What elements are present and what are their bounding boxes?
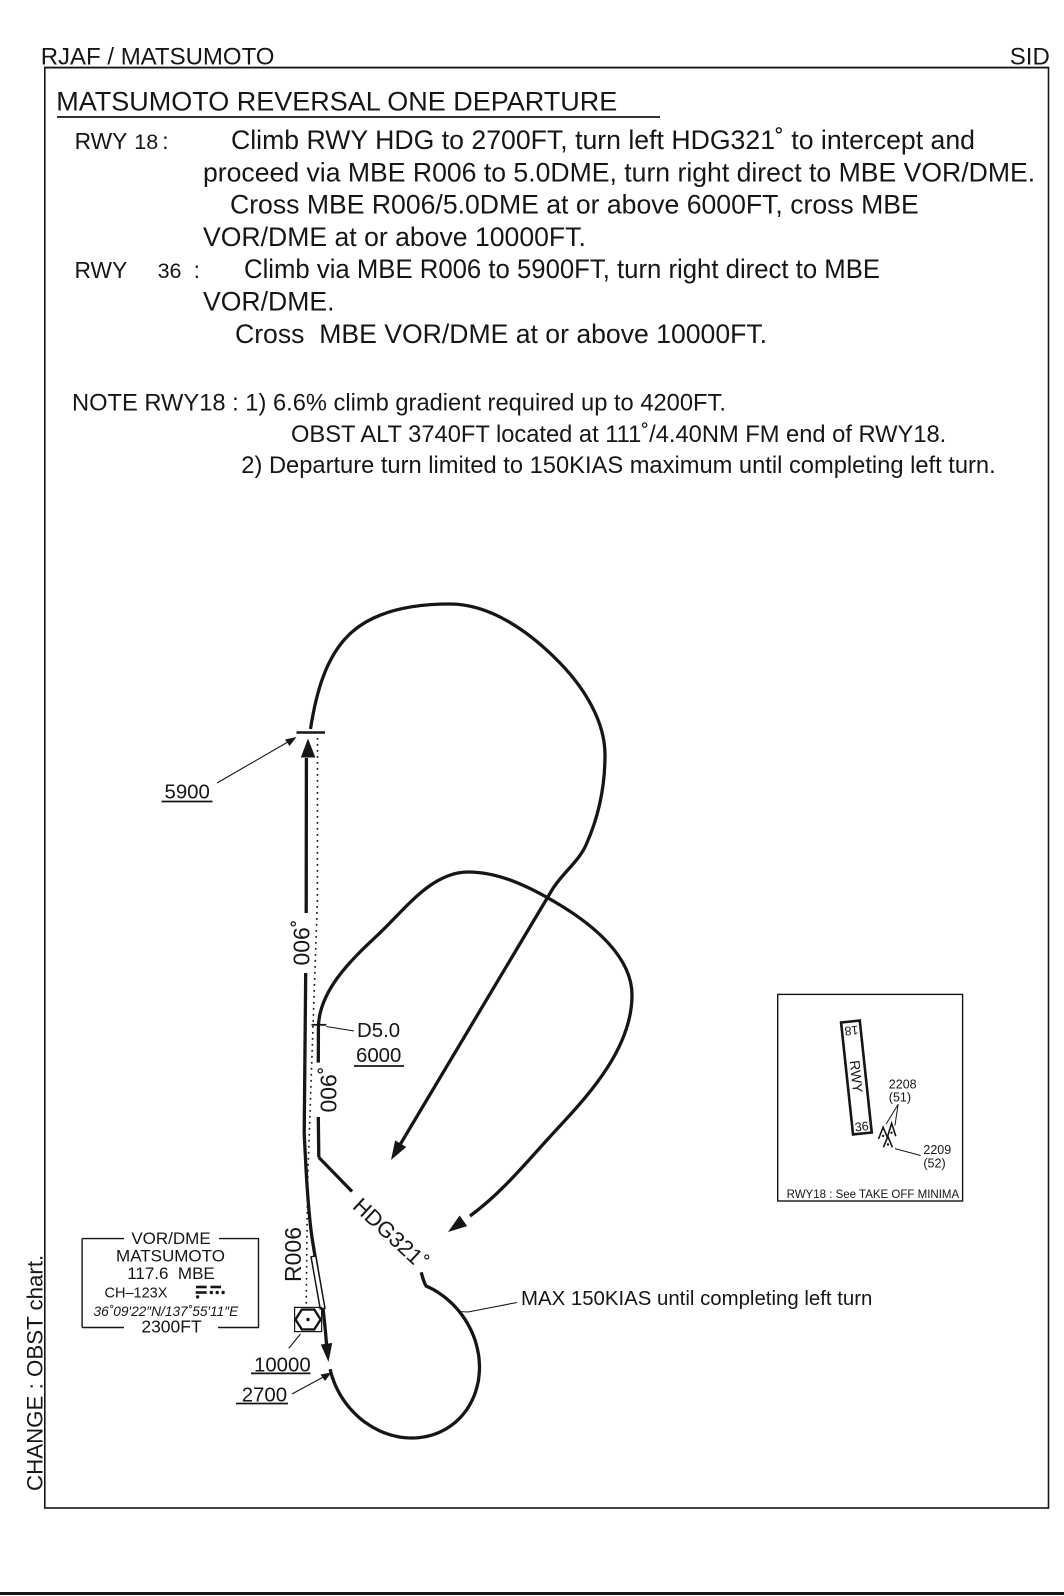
svg-text:006˚: 006˚	[316, 1066, 342, 1112]
svg-text:006˚: 006˚	[289, 919, 315, 965]
svg-text:2) Departure turn limited to 1: 2) Departure turn limited to 150KIAS max…	[241, 453, 995, 479]
svg-text:VOR/DME.: VOR/DME.	[203, 287, 335, 317]
svg-text:MATSUMOTO REVERSAL ONE DEPARTU: MATSUMOTO REVERSAL ONE DEPARTURE	[56, 87, 617, 117]
svg-text:RWY18 : See TAKE OFF MINIMA: RWY18 : See TAKE OFF MINIMA	[787, 1189, 960, 1201]
svg-text:OBST ALT 3740FT located at 111: OBST ALT 3740FT located at 111˚/4.40NM F…	[291, 422, 946, 448]
svg-text:CHANGE : OBST chart.: CHANGE : OBST chart.	[23, 1255, 48, 1491]
svg-text:117.6 MBE: 117.6 MBE	[127, 1264, 215, 1283]
svg-text:Cross MBE VOR/DME at or above: Cross MBE VOR/DME at or above 10000FT.	[235, 319, 767, 349]
svg-text:proceed via MBE R006 to 5.0DME: proceed via MBE R006 to 5.0DME, turn rig…	[203, 157, 1035, 187]
svg-text:18: 18	[844, 1023, 859, 1038]
svg-text:SID: SID	[1010, 44, 1050, 71]
svg-text:(51): (51)	[889, 1090, 911, 1104]
svg-text:D5.0: D5.0	[357, 1020, 400, 1042]
svg-text:2209: 2209	[923, 1143, 951, 1157]
svg-text:CH–123X: CH–123X	[105, 1286, 168, 1302]
svg-text:Cross MBE R006/5.0DME at or ab: Cross MBE R006/5.0DME at or above 6000FT…	[230, 190, 919, 220]
svg-text:MAX 150KIAS until completing l: MAX 150KIAS until completing left turn	[521, 1288, 872, 1310]
svg-text:RWY36:Climb via MBE R006 to 59: RWY36:Climb via MBE R006 to 5900FT, turn…	[75, 254, 881, 284]
svg-text:VOR/DME at or above 10000FT.: VOR/DME at or above 10000FT.	[203, 222, 586, 252]
svg-text:2300FT: 2300FT	[141, 1317, 202, 1337]
svg-text:36: 36	[854, 1119, 869, 1134]
svg-text:MATSUMOTO: MATSUMOTO	[116, 1247, 225, 1266]
svg-text:6000: 6000	[356, 1045, 401, 1067]
svg-text:RJAF / MATSUMOTO: RJAF / MATSUMOTO	[41, 44, 275, 71]
svg-text:5900: 5900	[165, 782, 210, 804]
svg-text:VOR/DME: VOR/DME	[131, 1229, 210, 1248]
svg-text:NOTE RWY18 : 1) 6.6% climb gra: NOTE RWY18 : 1) 6.6% climb gradient requ…	[72, 391, 726, 417]
svg-text:(52): (52)	[923, 1156, 945, 1170]
svg-text:R006: R006	[280, 1227, 306, 1282]
